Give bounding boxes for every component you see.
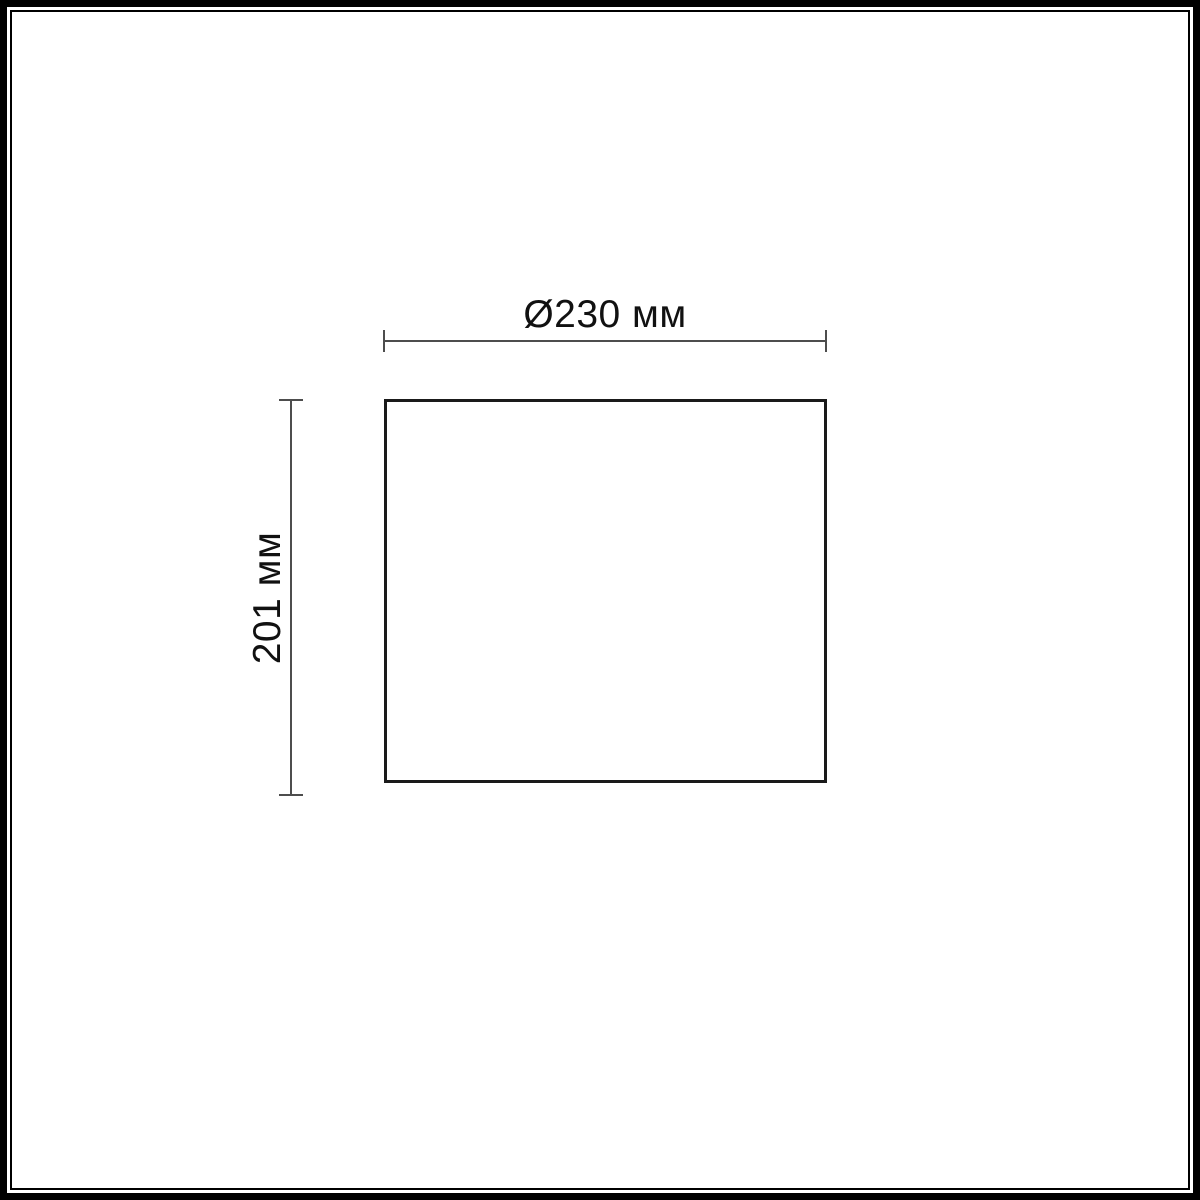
width-dimension-line xyxy=(383,340,827,342)
diagram-canvas: Ø230 мм 201 мм xyxy=(0,0,1200,1200)
product-outline-rectangle xyxy=(384,399,827,783)
width-dimension-label: Ø230 мм xyxy=(383,294,827,336)
height-dimension-label: 201 мм xyxy=(247,398,289,798)
height-dimension-line xyxy=(290,400,292,796)
